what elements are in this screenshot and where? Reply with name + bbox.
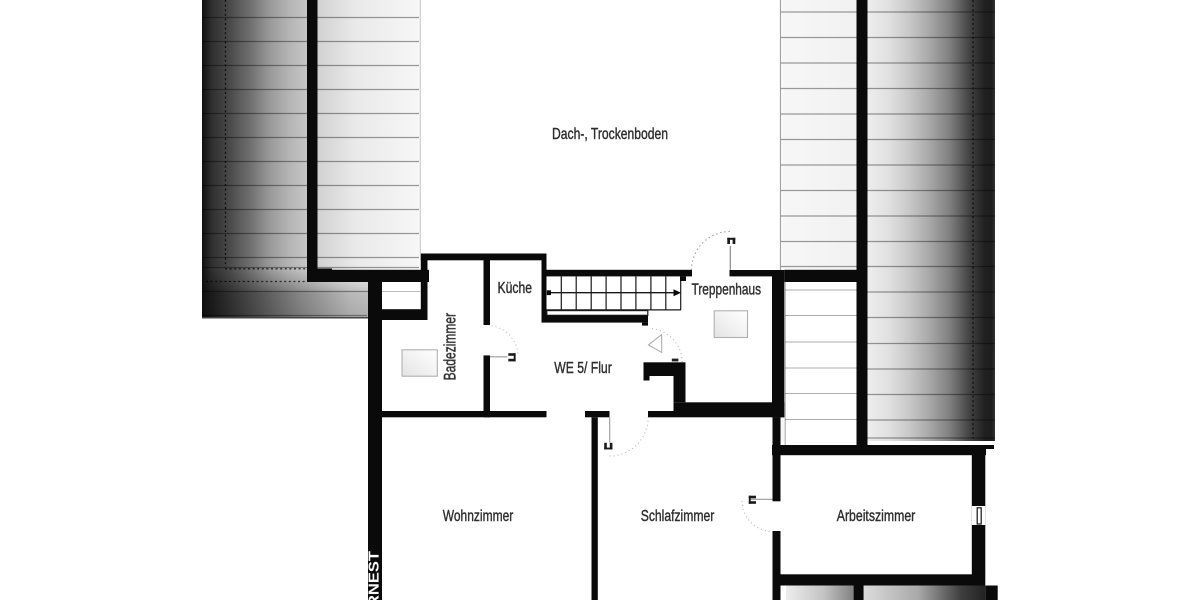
svg-text:Treppenhaus: Treppenhaus xyxy=(692,282,762,299)
svg-text:Wohnzimmer: Wohnzimmer xyxy=(443,508,514,525)
svg-text:WE 5/ Flur: WE 5/ Flur xyxy=(554,360,612,377)
svg-text:RNEST: RNEST xyxy=(366,551,383,600)
svg-text:Küche: Küche xyxy=(498,280,533,297)
svg-text:Dach-, Trockenboden: Dach-, Trockenboden xyxy=(552,126,668,143)
svg-text:Arbeitszimmer: Arbeitszimmer xyxy=(837,508,916,525)
svg-text:Schlafzimmer: Schlafzimmer xyxy=(641,508,715,525)
svg-text:Badezimmer: Badezimmer xyxy=(440,313,459,381)
